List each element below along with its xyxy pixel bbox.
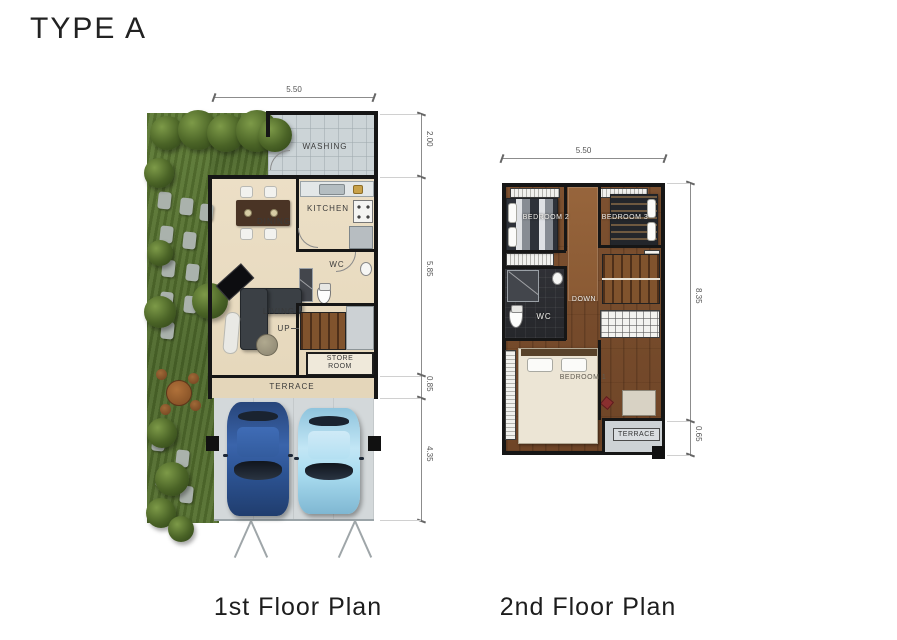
wash-basin [360, 262, 372, 276]
terrace-label: TERRACE [262, 382, 322, 391]
closet-grid [600, 310, 660, 338]
wardrobe [510, 188, 560, 198]
second-floor-caption: 2nd Floor Plan [488, 593, 688, 622]
terrace-post [652, 446, 665, 459]
dim-width-second: 5.50 [502, 146, 665, 155]
wall [208, 175, 378, 179]
dim-right-1: 2.00 [425, 131, 434, 147]
carport-post [206, 436, 219, 451]
dining-chair [240, 228, 253, 240]
wc-label: WC [322, 260, 352, 269]
dim-right-1: 8.35 [694, 288, 703, 304]
kitchen-sink [319, 184, 345, 195]
extension-line [380, 114, 421, 115]
extension-line [667, 455, 690, 456]
wall [374, 175, 378, 399]
down-label: DOWN [568, 296, 600, 304]
shower [507, 270, 539, 302]
dining-label: DINING [252, 217, 296, 226]
bedroom2-label: BEDROOM 2 [518, 214, 574, 222]
wall [502, 250, 566, 253]
car-dark-blue [227, 402, 289, 516]
coffee-table [256, 334, 278, 356]
dim-right-4: 4.35 [425, 446, 434, 462]
wall [208, 175, 212, 399]
floor-plan-sheet: TYPE A WASHING DINING [0, 0, 897, 640]
carport-post [368, 436, 381, 451]
extension-line [667, 421, 690, 422]
outdoor-stool [160, 404, 171, 415]
up-label: UP [276, 324, 292, 333]
wall [602, 418, 665, 421]
wall [296, 303, 378, 306]
wc2-label: WC [532, 312, 556, 321]
dining-chair [264, 186, 277, 198]
wall [208, 377, 212, 399]
extension-line [380, 520, 421, 521]
store-room-label: STORE ROOM [320, 355, 360, 371]
outdoor-stool [156, 369, 167, 380]
dresser [506, 253, 554, 266]
outdoor-stool [190, 400, 201, 411]
living-label: LIVING [254, 307, 304, 316]
bed-bedroom2 [506, 198, 558, 252]
dim-right-2: 0.65 [694, 426, 703, 442]
dim-width-first: 5.50 [214, 85, 374, 94]
dimension-line-top [214, 97, 374, 98]
wall [602, 418, 605, 455]
extension-line [380, 376, 421, 377]
dim-right-3: 0.85 [425, 376, 434, 392]
first-floor-caption: 1st Floor Plan [198, 593, 398, 622]
stair-landing [346, 306, 374, 350]
bedroom1-label: BEDROOM 1 [544, 374, 622, 382]
dim-tick [372, 93, 376, 102]
extension-line [380, 398, 421, 399]
extension-line [380, 177, 421, 178]
wall [266, 111, 270, 137]
car-light-blue [298, 408, 360, 514]
extension-line [667, 183, 690, 184]
first-floor-plan: WASHING DINING KITCHEN [0, 0, 460, 640]
garden-area-top [210, 113, 270, 177]
outdoor-table [166, 380, 192, 406]
wall [502, 266, 566, 269]
hallway [568, 187, 598, 301]
dining-chair [264, 228, 277, 240]
entrance-arrow [232, 521, 268, 559]
wall [296, 177, 299, 251]
stair-rail [602, 278, 660, 280]
fridge [349, 226, 373, 249]
second-floor-plan: BEDROOM 2 BEDROOM 3 WC DOWN [460, 0, 897, 640]
wall [502, 338, 566, 341]
bedroom3-label: BEDROOM 3 [596, 214, 654, 222]
entrance-arrow [336, 521, 372, 559]
kitchen-counter [300, 181, 374, 197]
wardrobe [505, 350, 516, 440]
bed-bedroom1 [518, 348, 598, 444]
wall [598, 245, 665, 248]
desk [622, 390, 656, 416]
terrace2-label: TERRACE [613, 428, 660, 441]
wall [564, 266, 567, 340]
dimension-line-top [502, 158, 665, 159]
up-arrow [291, 328, 299, 329]
outdoor-stool [188, 373, 199, 384]
stove [353, 200, 373, 223]
wall [208, 375, 378, 378]
dining-chair [240, 186, 253, 198]
dim-tick [663, 154, 667, 163]
counter-item [353, 185, 363, 194]
kitchen-label: KITCHEN [300, 204, 356, 213]
washing-label: WASHING [290, 142, 360, 151]
wall [266, 111, 378, 115]
dimension-line-right [690, 183, 691, 455]
wall [374, 111, 378, 181]
wash-basin [552, 272, 563, 285]
stairs-up [300, 312, 346, 350]
dim-right-2: 5.85 [425, 261, 434, 277]
wall [374, 377, 378, 399]
